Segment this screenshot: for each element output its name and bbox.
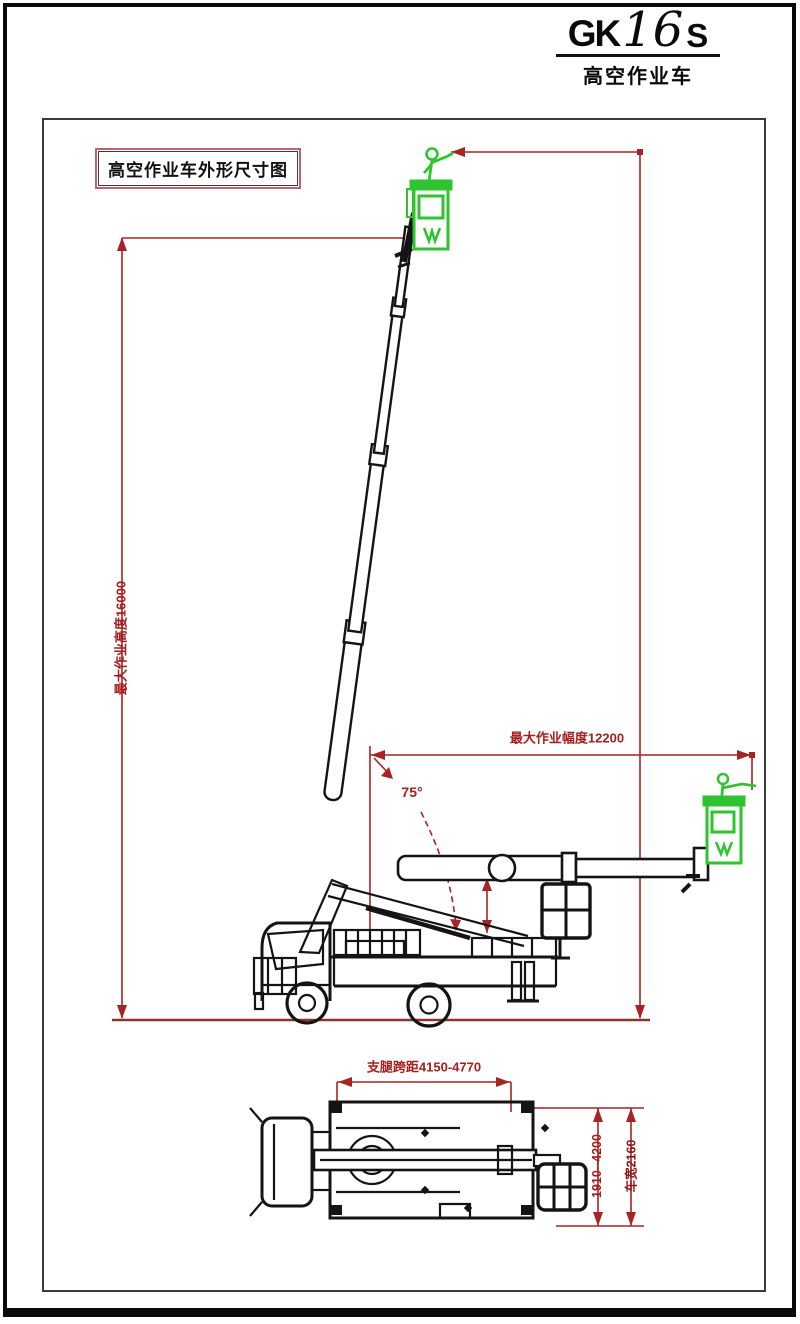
lateral-span-dimension: 1910--4200	[590, 1134, 604, 1198]
drawing-page: GK 16 S 高空作业车 高空作业车外形尺寸图 最大作业高度16000 最大作…	[0, 0, 800, 1324]
boom-angle-label: 75°	[401, 784, 422, 800]
drawing-label-box: 高空作业车外形尺寸图	[95, 148, 301, 189]
model-prefix: GK	[568, 15, 620, 52]
vehicle-width-dimension: 车宽2160	[621, 1140, 640, 1193]
max-height-dimension: 最大作业高度16000	[111, 581, 130, 695]
title-subtitle: 高空作业车	[556, 60, 720, 89]
model-code: GK 16 S	[556, 8, 720, 57]
max-radius-dimension: 最大作业幅度12200	[510, 728, 624, 747]
outrigger-span-dimension: 支腿跨距4150-4770	[367, 1057, 481, 1076]
model-suffix: S	[686, 19, 708, 52]
drawing-frame	[42, 118, 766, 1292]
title-block: GK 16 S 高空作业车	[556, 8, 720, 89]
drawing-label-text: 高空作业车外形尺寸图	[98, 151, 298, 186]
model-number: 16	[622, 8, 683, 52]
